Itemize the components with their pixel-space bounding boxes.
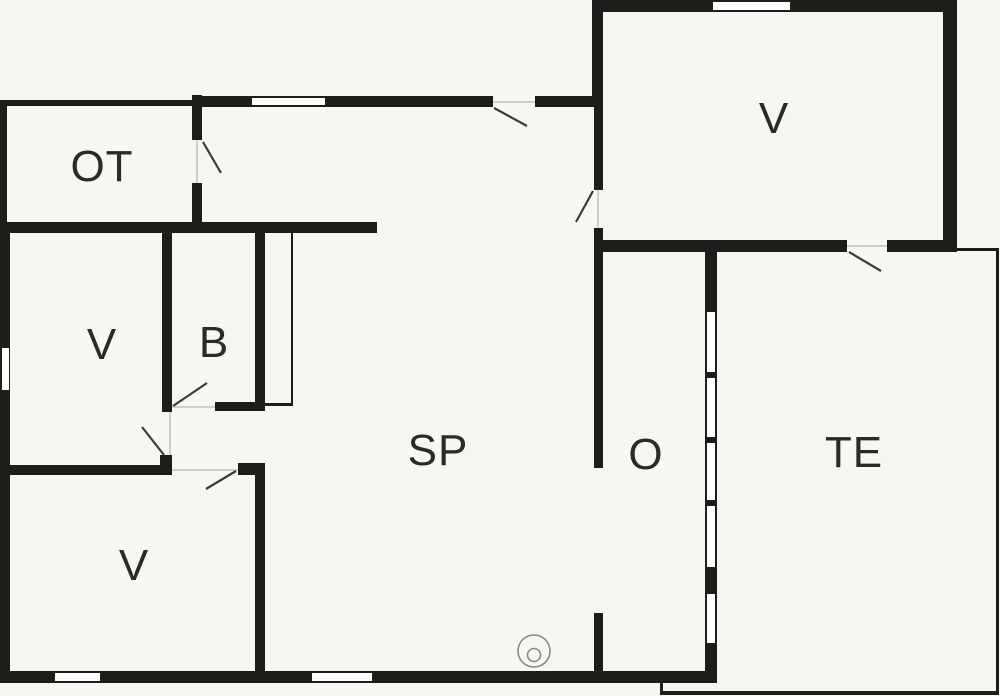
door-swing-entry — [494, 108, 527, 126]
room-label-v-mid-left: V — [87, 323, 117, 367]
door-swing-v-te — [849, 252, 881, 271]
door-swing-overlay — [0, 0, 1000, 696]
door-swing-v-bottom — [206, 471, 236, 489]
door-swing-ot — [203, 142, 221, 173]
door-swing-b — [173, 383, 207, 406]
room-label-sp: SP — [408, 429, 469, 473]
room-label-v-top-right: V — [759, 97, 789, 141]
door-swing-v-mid — [142, 427, 164, 455]
room-label-b: B — [199, 321, 229, 365]
room-label-te: TE — [825, 431, 883, 475]
room-label-o: O — [628, 433, 663, 477]
door-swing-sp-v — [576, 191, 593, 222]
floor-plan: OT V B V SP V O TE — [0, 0, 1000, 696]
room-label-v-bottom-left: V — [119, 544, 149, 588]
round-stove-symbol-inner — [528, 649, 541, 662]
room-label-ot: OT — [70, 145, 133, 189]
